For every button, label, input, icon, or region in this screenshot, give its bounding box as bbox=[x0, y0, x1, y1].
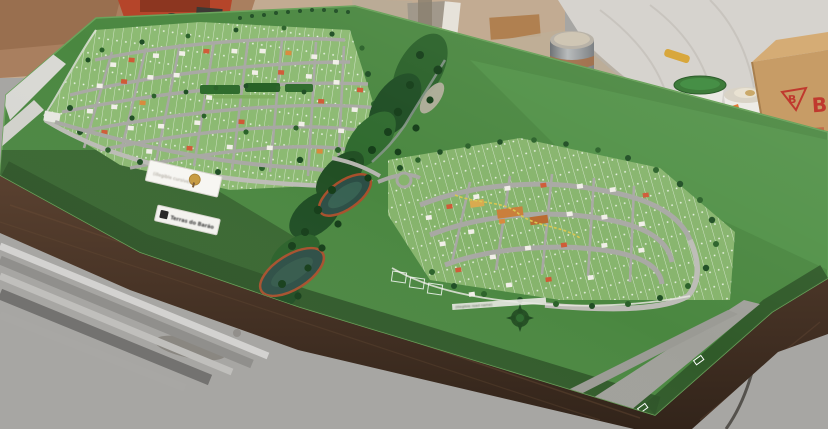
box-letter-b-large: B bbox=[811, 92, 828, 117]
box-letter-b: B bbox=[788, 93, 797, 107]
floor-stain-dot bbox=[233, 329, 241, 337]
workshop-scene: B B bbox=[0, 0, 828, 429]
scene-canvas: B B bbox=[0, 0, 828, 429]
